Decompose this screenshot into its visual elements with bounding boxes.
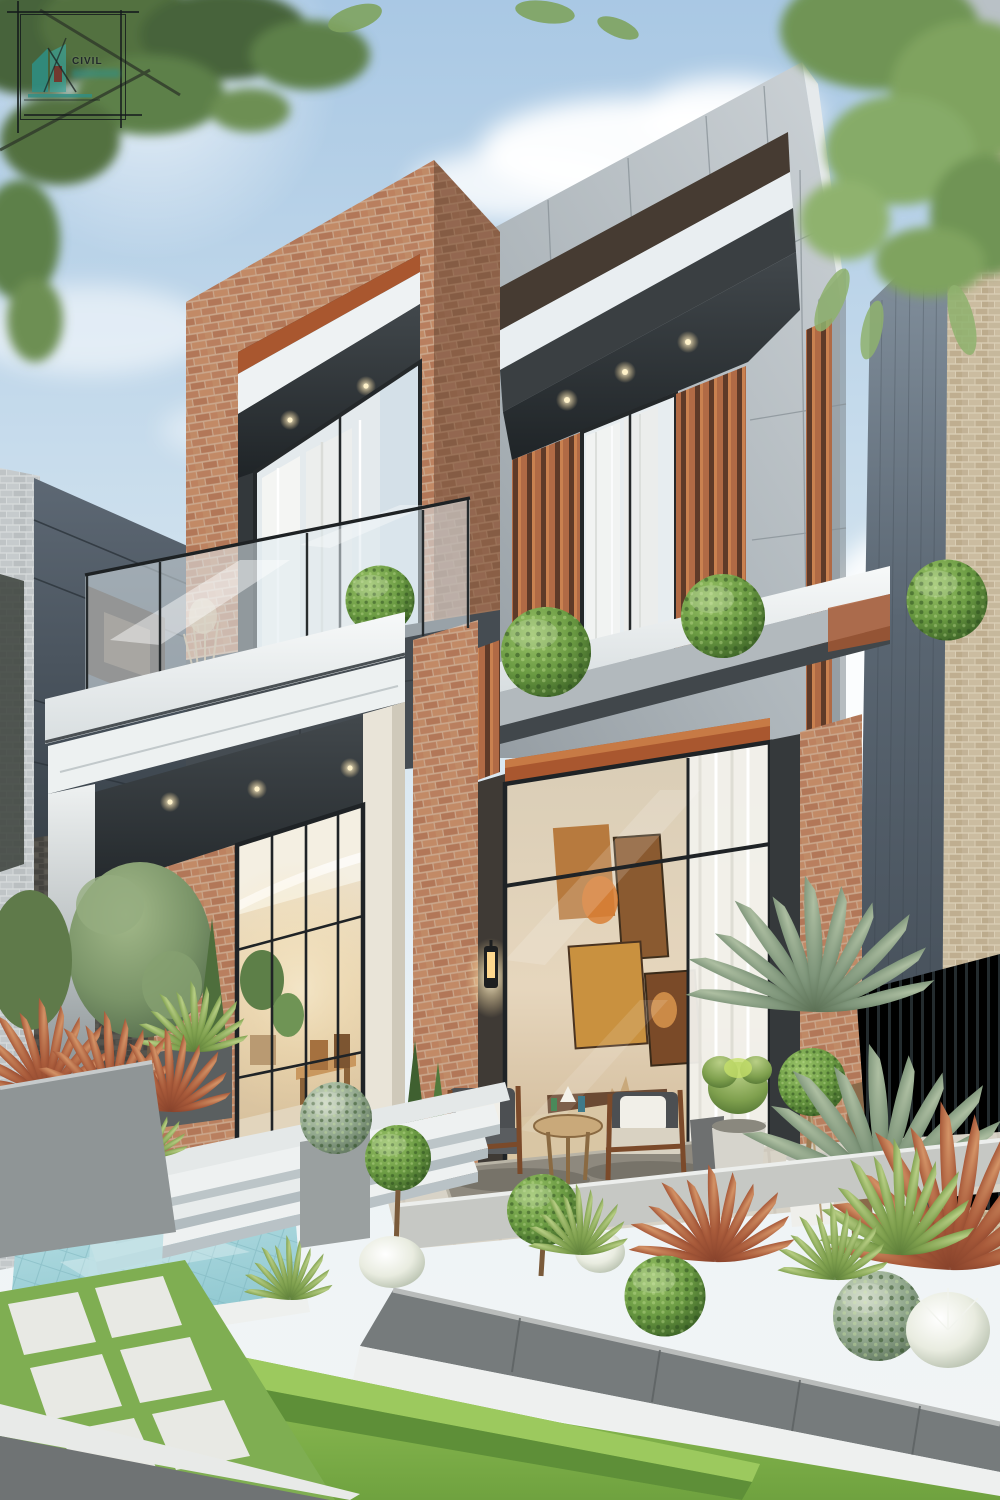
left-planter-wall: [0, 1062, 176, 1258]
facade-slat-strip: [806, 318, 832, 744]
architectural-render-scene: CIVIL: [0, 0, 1000, 1500]
render-canvas: [0, 0, 1000, 1500]
